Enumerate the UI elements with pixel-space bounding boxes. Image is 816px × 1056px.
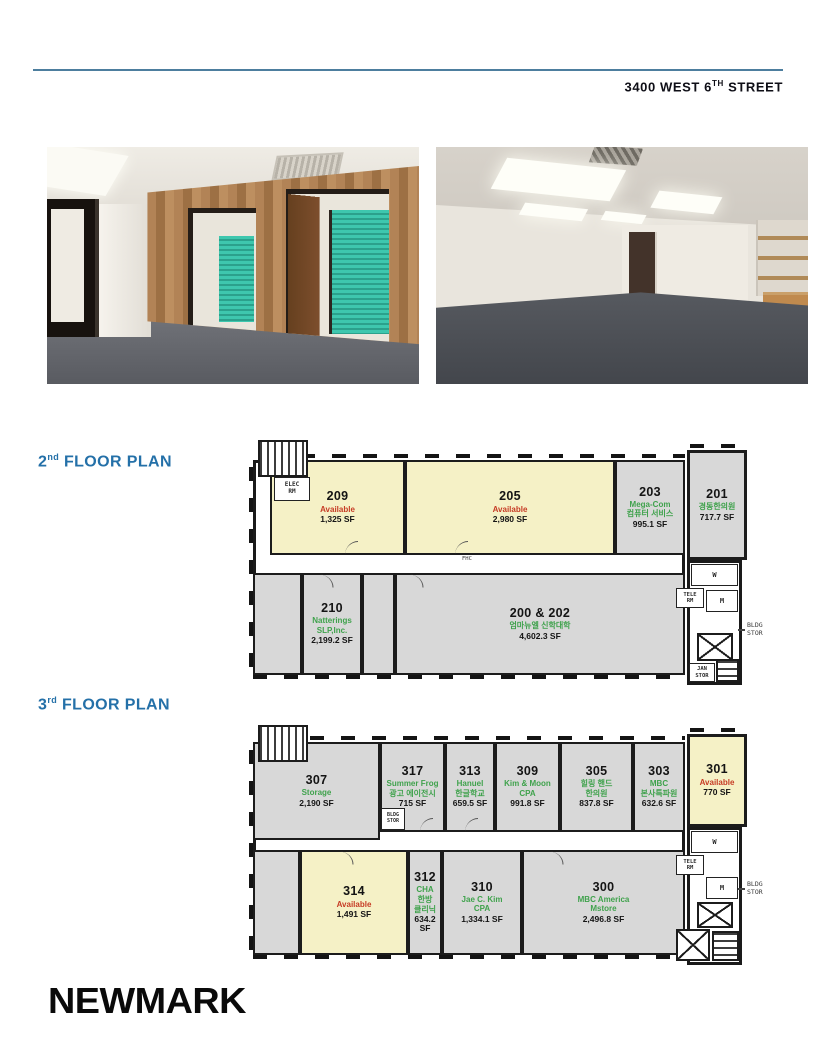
window-wall <box>270 454 685 458</box>
room-201: 201 경동한의원 717.7 SF <box>687 450 747 560</box>
room-number: 200 & 202 <box>510 607 570 620</box>
window-wall <box>690 444 745 448</box>
callout-dash <box>738 629 745 631</box>
room-312: 312 CHA 한방 클리닉 634.2 SF <box>408 850 442 955</box>
room-sf: 2,199.2 SF <box>311 636 353 645</box>
room-number: 305 <box>586 765 608 778</box>
room-tenant: 힐링 핸드 한의원 <box>581 779 613 798</box>
room-sf: 770 SF <box>703 788 730 797</box>
room-number: 310 <box>471 881 493 894</box>
title-number: 3 <box>38 696 47 713</box>
room-sf: 991.8 SF <box>510 799 545 808</box>
interior-photo-wood-offices <box>47 147 419 384</box>
room-sf: 717.7 SF <box>700 513 735 522</box>
room-sf: 632.6 SF <box>642 799 677 808</box>
room-sf: 1,325 SF <box>320 515 355 524</box>
wall-shelves <box>756 220 808 296</box>
floor-plan-title-3rd: 3rd FLOOR PLAN <box>38 695 170 714</box>
womens-restroom-label: W <box>691 831 738 853</box>
room-number: 300 <box>593 881 615 894</box>
window-wall <box>690 728 745 732</box>
room-sf: 634.2 SF <box>411 915 439 934</box>
room-tenant: Hanuel 한글학교 <box>455 779 484 798</box>
window-wall <box>310 736 685 740</box>
room-sf: 995.1 SF <box>633 520 668 529</box>
room-number: 205 <box>499 490 521 503</box>
room-number: 317 <box>402 765 424 778</box>
stairs <box>716 659 739 682</box>
window-wall <box>253 955 685 959</box>
room-sf: 837.8 SF <box>579 799 614 808</box>
room-number: 209 <box>327 490 349 503</box>
title-rest: FLOOR PLAN <box>57 696 170 713</box>
property-address: 3400 WEST 6TH STREET <box>624 79 783 94</box>
left-doorway-interior <box>51 209 84 323</box>
room-status: Available <box>337 900 372 910</box>
mens-restroom-label: M <box>706 877 738 899</box>
title-ordinal: nd <box>47 452 59 462</box>
room-sf: 2,980 SF <box>493 515 528 524</box>
room-unlabeled <box>362 573 395 675</box>
room-303: 303 MBC 본사특파원 632.6 SF <box>633 742 685 832</box>
floor-plan-2nd: ELEC RM 209 Available 1,325 SF 205 Avail… <box>250 437 772 695</box>
room-number: 301 <box>706 763 728 776</box>
room-203: 203 Mega-Com 컴퓨터 서비스 995.1 SF <box>615 460 685 555</box>
room-tenant: Mega-Com 컴퓨터 서비스 <box>627 500 673 519</box>
interior-photo-open-office <box>436 147 808 384</box>
room-unlabeled <box>253 573 302 675</box>
room-200-202: 200 & 202 엄마뉴엘 신학대학 4,602.3 SF <box>395 573 685 675</box>
room-number: 313 <box>459 765 481 778</box>
room-310: 310 Jae C. Kim CPA 1,334.1 SF <box>442 850 522 955</box>
room-unlabeled <box>253 850 300 955</box>
room-tenant: 엄마뉴엘 신학대학 <box>509 621 570 631</box>
building-storage-label: BLDG STOR <box>747 881 763 897</box>
stairs <box>712 931 739 961</box>
title-ordinal: rd <box>47 695 57 705</box>
title-rest: FLOOR PLAN <box>59 453 172 470</box>
shaft <box>676 929 710 961</box>
room-300: 300 MBC America Mstore 2,496.8 SF <box>522 850 685 955</box>
room-number: 303 <box>648 765 670 778</box>
room-sf: 4,602.3 SF <box>519 632 561 641</box>
room-tenant: Natterings SLP,Inc. <box>312 616 352 635</box>
address-tail: STREET <box>724 79 783 94</box>
room-sf: 1,491 SF <box>337 910 372 919</box>
address-ordinal: TH <box>712 79 724 88</box>
title-number: 2 <box>38 453 47 470</box>
room-number: 201 <box>706 488 728 501</box>
elevator <box>697 633 733 661</box>
room-tenant: CHA 한방 클리닉 <box>414 885 436 914</box>
room-tenant: MBC America Mstore <box>578 895 630 914</box>
janitor-storage-label: JAN STOR <box>689 663 715 682</box>
mens-restroom-label: M <box>706 590 738 612</box>
white-wall-column <box>99 204 151 337</box>
room-number: 307 <box>306 774 328 787</box>
callout-dash <box>738 888 745 890</box>
room-number: 312 <box>414 871 436 884</box>
stairs <box>258 725 308 762</box>
window-wall <box>253 675 685 679</box>
newmark-logo: NEWMARK <box>48 980 246 1022</box>
room-sf: 1,334.1 SF <box>461 915 503 924</box>
tele-room-label: TELE RM <box>676 588 704 608</box>
room-status: Available <box>320 505 355 515</box>
header-rule <box>33 69 783 71</box>
room-sf: 2,190 SF <box>299 799 334 808</box>
elec-room-label: ELEC RM <box>274 477 310 501</box>
floor-plan-title-2nd: 2nd FLOOR PLAN <box>38 452 172 471</box>
building-storage-label: BLDG STOR <box>747 622 763 638</box>
elevator <box>697 902 733 928</box>
room-301: 301 Available 770 SF <box>687 734 747 827</box>
room-210: 210 Natterings SLP,Inc. 2,199.2 SF <box>302 573 362 675</box>
tele-room-label: TELE RM <box>676 855 704 875</box>
stairs <box>258 440 308 477</box>
room-205: 205 Available 2,980 SF <box>405 460 615 555</box>
air-vent <box>589 147 643 165</box>
room-number: 314 <box>343 885 365 898</box>
room-number: 210 <box>321 602 343 615</box>
room-tenant: Storage <box>302 788 332 798</box>
address-main: 3400 WEST 6 <box>624 79 712 94</box>
room-tenant: Kim & Moon CPA <box>504 779 551 798</box>
floor-plan-3rd: 307 Storage 2,190 SF 317 Summer Frog 광고 … <box>250 722 772 974</box>
room-tenant: Summer Frog 광고 에이전시 <box>386 779 438 798</box>
room-tenant: 경동한의원 <box>699 502 736 512</box>
room-tenant: Jae C. Kim CPA <box>462 895 503 914</box>
flyer-page: 3400 WEST 6TH STREET <box>0 0 816 1056</box>
room-status: Available <box>493 505 528 515</box>
room-number: 309 <box>517 765 539 778</box>
room-309: 309 Kim & Moon CPA 991.8 SF <box>495 742 560 832</box>
room-number: 203 <box>639 486 661 499</box>
womens-restroom-label: W <box>691 564 738 586</box>
room-status: Available <box>700 778 735 788</box>
room-305: 305 힐링 핸드 한의원 837.8 SF <box>560 742 633 832</box>
building-storage-closet-label: BLDG STOR <box>381 808 405 830</box>
room-tenant: MBC 본사특파원 <box>641 779 678 798</box>
fhc-label: FHC <box>462 556 472 563</box>
room-314: 314 Available 1,491 SF <box>300 850 408 955</box>
room-sf: 2,496.8 SF <box>583 915 625 924</box>
teal-window-blinds <box>329 210 389 333</box>
room-313: 313 Hanuel 한글학교 659.5 SF <box>445 742 495 832</box>
room-sf: 659.5 SF <box>453 799 488 808</box>
teal-window-blinds <box>219 236 254 322</box>
